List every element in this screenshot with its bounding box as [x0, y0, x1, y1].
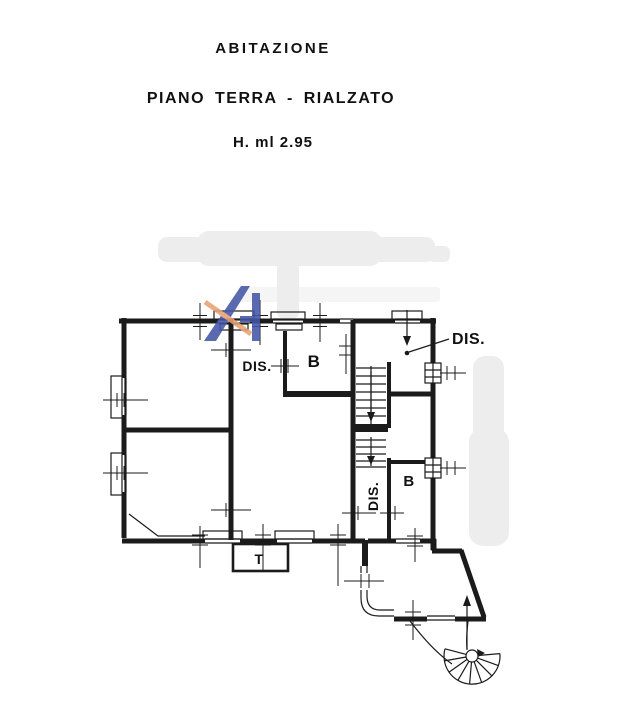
- room-label-dis-stair: DIS.: [365, 482, 381, 511]
- stair-upper-flight: [356, 366, 386, 424]
- stair-landing: [354, 424, 388, 432]
- dis-leader-dot: [405, 351, 410, 356]
- dis-leader-line: [409, 339, 449, 352]
- room-label-bath-right: B: [403, 473, 414, 490]
- sill: [276, 324, 302, 330]
- floor-plan-canvas: DIS. B DIS. DIS. B T ABITAZIONE PIANO TE…: [0, 0, 639, 718]
- room-label-dis-top-right: DIS.: [452, 331, 485, 348]
- window-right-1: [425, 363, 441, 383]
- window-right-2: [425, 458, 441, 478]
- sill: [111, 453, 125, 495]
- page-title: ABITAZIONE: [215, 40, 331, 57]
- room-label-terrace: T: [254, 551, 263, 567]
- wing-step-wall: [432, 539, 462, 551]
- logo-crossbar: [240, 316, 252, 322]
- sill: [203, 531, 242, 539]
- watermark-faint-text-band: [240, 287, 440, 302]
- terrace-up-arrow: [463, 595, 471, 606]
- room-label-dis-top-left: DIS.: [242, 358, 271, 374]
- spiral-steps: [444, 649, 500, 684]
- window-bottom-3: [396, 539, 420, 543]
- watermark-blob: [469, 428, 509, 546]
- sill: [111, 376, 125, 418]
- ceiling-height-note: H. ml 2.95: [233, 134, 313, 151]
- stair-lower-flight: [356, 437, 386, 467]
- floor-plan-page: DIS. B DIS. DIS. B T ABITAZIONE PIANO TE…: [0, 0, 639, 718]
- logo-left-stroke: [204, 286, 250, 341]
- bottom-left-corner-step: [129, 514, 205, 536]
- spiral-staircase: [410, 621, 500, 684]
- sill: [275, 531, 314, 539]
- window-wing-bottom: [427, 616, 455, 620]
- staircase: [354, 366, 388, 467]
- stair-down-arrow: [367, 412, 375, 422]
- wing-diagonal-wall: [461, 550, 484, 617]
- terrace-parapet: [361, 566, 394, 616]
- page-subtitle: PIANO TERRA - RIALZATO: [147, 90, 395, 107]
- watermark-blob: [327, 237, 435, 262]
- room-label-bath-top: B: [308, 352, 321, 371]
- watermark-blob: [428, 246, 450, 262]
- entry-down-arrow: [403, 336, 411, 346]
- spiral-guide-line: [410, 621, 452, 664]
- logo-right-stroke: [252, 293, 260, 341]
- header: ABITAZIONE PIANO TERRA - RIALZATO H. ml …: [147, 40, 395, 151]
- watermark-blobs: [158, 231, 509, 546]
